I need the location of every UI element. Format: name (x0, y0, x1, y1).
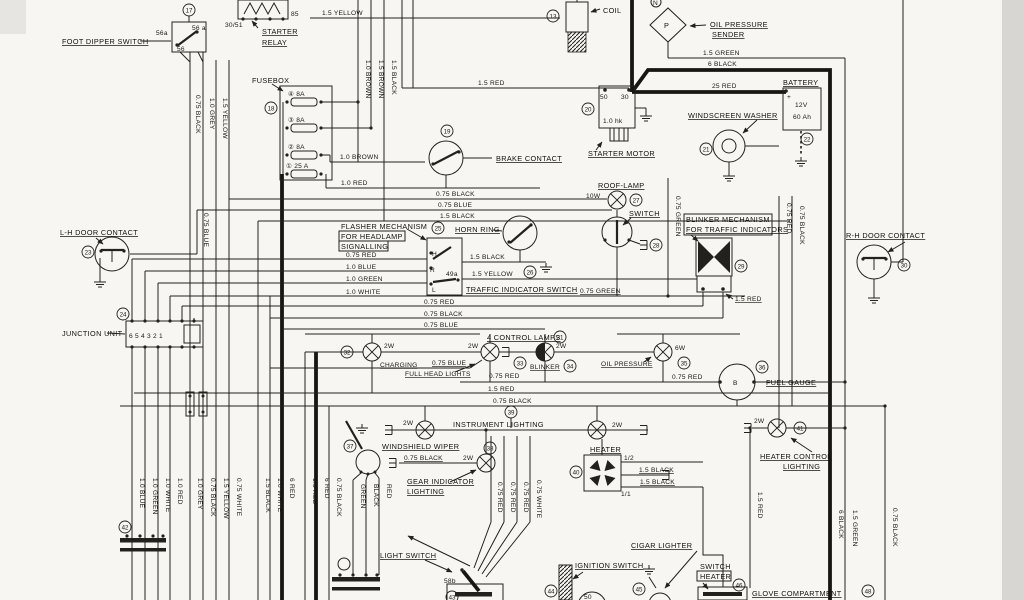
scanned-wiring-diagram: FOOT DIPPER SWITCH 56a 56 a 56 17 30/51 … (0, 0, 1024, 600)
terminal-h: H (432, 251, 437, 258)
wire-label: 1.0 GREEN (151, 478, 158, 515)
svg-text:20: 20 (585, 106, 592, 113)
wire-label: 1.5 BLACK (440, 213, 475, 220)
cigar-lighter: CIGAR LIGHTER 45 (631, 541, 697, 600)
component-number-36: 36 (756, 361, 768, 373)
label-roof-switch: SWITCH (629, 209, 660, 218)
component-number-24: 24 (117, 308, 129, 320)
svg-text:21: 21 (703, 146, 710, 153)
label-instrument-lighting: INSTRUMENT LIGHTING (453, 420, 544, 429)
component-number-30: 30 (898, 259, 910, 271)
svg-text:27: 27 (633, 197, 640, 204)
wire-label: 0.75 RED (522, 482, 529, 513)
terminal-56: 56 (177, 46, 185, 53)
svg-text:18: 18 (268, 105, 275, 112)
component-number-40: 40 (570, 466, 582, 478)
wire-label: 1.0 WHITE (276, 478, 283, 513)
svg-text:29: 29 (738, 263, 745, 270)
label-oil-pressure-sender-1: OIL PRESSURE (710, 20, 768, 29)
fuse-1-label: ① 25 A (286, 162, 309, 170)
wire-label: 0.75 RED (346, 252, 377, 259)
component-number-13: 13 (547, 10, 559, 22)
label-cigar-lighter: CIGAR LIGHTER (631, 541, 692, 550)
wire-label: 0.75 BLACK (404, 455, 443, 462)
label-oil-pressure-lamp: OIL PRESSURE (601, 361, 653, 368)
battery-voltage: 12V (795, 102, 808, 109)
component-number-28: 28 (650, 239, 662, 251)
wire-label: 0.75 RED (496, 482, 503, 513)
svg-text:17: 17 (186, 7, 193, 14)
wire-label: 0.75 RED (785, 203, 792, 234)
label-gear-indicator: GEAR INDICATOR (407, 477, 474, 486)
battery-capacity: 60 Ah (793, 114, 811, 121)
wire-label: BLACK (372, 484, 379, 507)
wire-label: 1.5 YELLOW (221, 98, 228, 139)
label-blinker-mech-1: BLINKER MECHANISM (686, 215, 770, 224)
wire-label: 1.5 YELLOW (322, 10, 363, 17)
wire-label: 0.75 BLACK (209, 478, 216, 517)
label-charging: CHARGING (380, 362, 418, 369)
label-heater: HEATER (590, 445, 621, 454)
component-number-42: 42 (119, 521, 131, 533)
svg-text:43: 43 (449, 594, 456, 600)
instrument-lighting: 2W 2W INSTRUMENT LIGHTING 39 (385, 406, 647, 439)
wire-label: 1.5 GREEN (703, 50, 740, 57)
label-flasher-1: FLASHER MECHANISM (341, 222, 427, 231)
component-number-21: 21 (700, 143, 712, 155)
label-blinker-lamp: BLINKER (530, 364, 560, 371)
wire-label: 1.5 RED (488, 386, 515, 393)
fuel-gauge: B FUEL GAUGE 36 (718, 361, 816, 400)
label-fuel-gauge: FUEL GAUGE (766, 378, 816, 387)
component-number-17: 17 (183, 4, 195, 16)
roof-lamp-watt: 10W (586, 193, 601, 200)
svg-text:46: 46 (736, 582, 743, 589)
wire-label: 1.5 RED (311, 478, 318, 505)
label-control-lamps: 4 CONTROL LAMPS (487, 333, 561, 342)
component-number-38: 38 (484, 442, 496, 454)
junction-terminals: 6 5 4 3 2 1 (129, 333, 163, 340)
wire-label: 1.0 BROWN (364, 60, 371, 99)
wire-label: 1.0 RED (176, 478, 183, 505)
wire-label: 1.0 GREEN (346, 276, 383, 283)
terminal-50-ign: 50 (584, 594, 592, 600)
blinker-lamp-watt: 2W (556, 343, 567, 350)
wire-label: 0.75 BLACK (436, 191, 475, 198)
wire-label: 1.5 BROWN (377, 60, 384, 99)
wire-label: 1.5 RED (735, 296, 762, 303)
label-coil: COIL (603, 6, 621, 15)
terminal-56a: 56a (156, 30, 168, 37)
label-traffic-indicator-switch: TRAFFIC INDICATOR SWITCH (466, 285, 578, 294)
label-rh-door-contact: R-H DOOR CONTACT (846, 231, 925, 240)
label-foot-dipper-switch: FOOT DIPPER SWITCH (62, 37, 148, 46)
component-number-45: 45 (633, 583, 645, 595)
terminal-85: 85 (291, 11, 299, 18)
wire-label: 0.75 BLUE (202, 213, 209, 247)
wire-label: 1.5 BLACK (639, 467, 674, 474)
terminal-30: 30 (621, 94, 629, 101)
component-number-35: 35 (678, 357, 690, 369)
label-switch-heater-2: HEATER (700, 572, 731, 581)
wire-label: 0.75 GREEN (580, 288, 621, 295)
svg-text:19: 19 (444, 128, 451, 135)
battery: + 12V 60 Ah BATTERY 22 (783, 78, 821, 166)
wire-label: 1.5 RED (478, 80, 505, 87)
component-number-27: 27 (630, 194, 642, 206)
horn-ring: HORN RING 26 (455, 216, 552, 278)
label-brake-contact: BRAKE CONTACT (496, 154, 562, 163)
wire-label: 1.5 BLACK (640, 479, 675, 486)
wire-label: 0.75 BLACK (493, 398, 532, 405)
sender-p: P (664, 21, 669, 30)
left-switch-block: 42 (119, 521, 166, 552)
diagram-canvas: FOOT DIPPER SWITCH 56a 56 a 56 17 30/51 … (0, 0, 1024, 600)
label-windshield-wiper: WINDSHIELD WIPER (382, 442, 459, 451)
lh-door-contact: L-H DOOR CONTACT 23 (60, 228, 138, 287)
svg-text:24: 24 (120, 311, 127, 318)
wire-label: 0.75 BLACK (335, 478, 342, 517)
wire-label: 1.0 RED (341, 180, 368, 187)
ignition-coil: COIL 13 (547, 0, 621, 52)
heater-switch: SWITCH HEATER 46 (697, 562, 747, 600)
wire-label: 0.75 BLACK (798, 206, 805, 245)
terminal-r: R (430, 267, 435, 274)
label-windscreen-washer: WINDSCREEN WASHER (688, 111, 778, 120)
svg-text:33: 33 (517, 360, 524, 367)
component-number-48: 48 (862, 585, 874, 597)
wire-label: 0.75 GREEN (674, 196, 681, 237)
component-number-20: 20 (582, 103, 594, 115)
heater-fan: HEATER 1/2 1.5 BLACK 1.5 BLACK 1/1 40 (570, 445, 675, 498)
svg-text:48: 48 (865, 588, 872, 595)
wire-label: 6 BLACK (708, 61, 737, 68)
svg-text:25: 25 (435, 225, 442, 232)
instr-lamp-watt-2: 2W (612, 422, 623, 429)
label-full-head-lights: FULL HEAD LIGHTS (405, 371, 471, 378)
label-fusebox: FUSEBOX (252, 76, 289, 85)
terminal-30-51: 30/51 (225, 22, 243, 29)
wire-label: 0.75 WHITE (535, 480, 542, 519)
svg-text:32: 32 (344, 349, 351, 356)
heater-control-lighting: 2W HEATER CONTROL LIGHTING 41 (744, 418, 832, 471)
label-battery: BATTERY (783, 78, 818, 87)
fusebox: ④ 8A ③ 8A ② 8A ① 25 A FUSEBOX 18 (252, 76, 332, 180)
wire-labels-rotated: 0.75 BLACK 1.0 GREY 1.5 YELLOW 0.75 BLUE… (138, 60, 898, 547)
terminal-56a2: 56 a (192, 25, 206, 32)
label-switch-heater-1: SWITCH (700, 562, 731, 571)
svg-text:28: 28 (653, 242, 660, 249)
oil-lamp-watt: 6W (675, 345, 686, 352)
component-number-22: 22 (801, 133, 813, 145)
svg-text:44: 44 (548, 588, 555, 595)
svg-text:36: 36 (759, 364, 766, 371)
svg-text:31: 31 (557, 334, 564, 341)
sender-n: N (653, 0, 658, 7)
component-number-29: 29 (735, 260, 747, 272)
label-flasher-2: FOR HEADLAMP (341, 232, 403, 241)
wire-label: 0.75 RED (424, 299, 455, 306)
wire-label: 1.0 GREY (196, 478, 203, 510)
terminal-49a: 49a (446, 271, 458, 278)
wire-label: 1.5 BLACK (470, 254, 505, 261)
svg-text:23: 23 (85, 249, 92, 256)
component-number-44: 44 (545, 585, 557, 597)
wire-label: 6 BLACK (837, 510, 844, 539)
wire-label: 6 RED (323, 478, 330, 499)
hcl-lamp-watt: 2W (754, 418, 765, 425)
wire-label: 0.75 BLACK (424, 311, 463, 318)
wire-label: 1.0 BROWN (340, 154, 379, 161)
component-number-18: 18 (265, 102, 277, 114)
foot-dipper-switch: FOOT DIPPER SWITCH 56a 56 a 56 17 (62, 4, 206, 53)
terminal-50: 50 (600, 94, 608, 101)
ignition-switch: IGNITION SWITCH 50 44 (545, 561, 644, 600)
svg-text:39: 39 (508, 409, 515, 416)
wire-label: 0.75 RED (672, 374, 703, 381)
terminal-b: B (733, 380, 738, 387)
svg-text:40: 40 (573, 469, 580, 476)
windshield-wiper: WINDSHIELD WIPER 37 (344, 421, 459, 476)
label-roof-lamp: ROOF-LAMP (598, 181, 645, 190)
wire-label: GREEN (359, 484, 366, 509)
label-starter: STARTER (262, 27, 298, 36)
svg-text:22: 22 (804, 136, 811, 143)
wire-label: 0.75 RED (489, 373, 520, 380)
wire-label: 1.5 BLACK (390, 60, 397, 95)
label-glove-1: GLOVE COMPARTMENT (752, 589, 842, 598)
label-light-switch: LIGHT SWITCH (380, 551, 436, 560)
fuse-4-label: ④ 8A (288, 90, 305, 98)
component-number-25: 25 (432, 222, 444, 234)
label-heater-control: HEATER CONTROL (760, 452, 832, 461)
wire-label: 6 RED (288, 478, 295, 499)
wire-label: 1.5 YELLOW (472, 271, 513, 278)
starter-power: 1.0 hk (603, 118, 623, 125)
component-number-46: 46 (733, 579, 745, 591)
inline-connectors (186, 392, 207, 416)
terminal-oneone: 1/1 (621, 491, 631, 498)
component-number-33: 33 (514, 357, 526, 369)
wire-label: 1.0 BLUE (346, 264, 377, 271)
windscreen-washer: WINDSCREEN WASHER 21 (688, 111, 779, 181)
fhl-lamp-watt: 2W (468, 343, 479, 350)
terminal-l: L (432, 287, 436, 294)
brake-contact: BRAKE CONTACT 19 (429, 125, 562, 188)
rh-door-contact: R-H DOOR CONTACT 30 (846, 231, 925, 303)
wire-label: 1.5 YELLOW (222, 478, 229, 519)
wire-label: 25 RED (712, 83, 737, 90)
label-lh-door-contact: L-H DOOR CONTACT (60, 228, 138, 237)
svg-text:41: 41 (797, 425, 804, 432)
wire-label: 0.75 WHITE (235, 478, 242, 517)
svg-text:26: 26 (527, 269, 534, 276)
svg-text:42: 42 (122, 524, 129, 531)
wire-label: 0.75 BLUE (424, 322, 458, 329)
battery-plus: + (787, 94, 791, 101)
gear-lamp-watt: 2W (463, 455, 474, 462)
svg-text:35: 35 (681, 360, 688, 367)
terminal-58b: 58b (444, 578, 456, 585)
control-lamps: 4 CONTROL LAMPS 31 2W CHARGING 2W 2W BLI… (341, 331, 690, 378)
component-number-37: 37 (344, 440, 356, 452)
wire-label: RED (385, 484, 392, 499)
starter-relay: 30/51 85 STARTER RELAY (225, 0, 299, 47)
terminal-half: 1/2 (624, 455, 634, 462)
wire-label: 0.75 RED (509, 482, 516, 513)
wire-label: 1.0 WHITE (164, 478, 171, 513)
wire-label: 1.0 GREY (208, 98, 215, 130)
component-number-39: 39 (505, 406, 517, 418)
starter-motor: 50 30 1.0 hk STARTER MOTOR 20 (582, 86, 655, 158)
label-oil-pressure-sender-2: SENDER (712, 30, 745, 39)
wire-label: 0.75 BLUE (438, 202, 472, 209)
svg-text:45: 45 (636, 586, 643, 593)
wiper-switch-block (332, 558, 380, 591)
component-number-19: 19 (441, 125, 453, 137)
label-horn-ring: HORN RING (455, 225, 500, 234)
label-relay: RELAY (262, 38, 287, 47)
svg-text:30: 30 (901, 262, 908, 269)
instr-lamp-watt: 2W (403, 420, 414, 427)
fuse-3-label: ③ 8A (288, 116, 305, 124)
fuse-2-label: ② 8A (288, 143, 305, 151)
wire-label: 1.5 GREEN (851, 510, 858, 547)
label-heater-control-2: LIGHTING (783, 462, 820, 471)
charging-lamp-watt: 2W (384, 343, 395, 350)
svg-text:37: 37 (347, 443, 354, 450)
wire-label: 1.0 BLUE (138, 478, 145, 509)
svg-text:34: 34 (567, 363, 574, 370)
component-number-34: 34 (564, 360, 576, 372)
wire-label: 0.75 BLACK (194, 95, 201, 134)
wire-label: 0.75 BLUE (432, 360, 466, 367)
wire-label: 1.5 RED (756, 492, 763, 519)
wire-label: 0.75 BLACK (891, 508, 898, 547)
label-flasher-3: SIGNALLING (341, 242, 388, 251)
glove-compartment-lighting: GLOVE COMPARTMENT LIGHTING 48 (752, 585, 874, 600)
component-number-26: 26 (524, 266, 536, 278)
blinker-mechanism: BLINKER MECHANISM FOR TRAFFIC INDICATORS… (684, 214, 788, 303)
component-number-23: 23 (82, 246, 94, 258)
label-ignition-switch: IGNITION SWITCH (575, 561, 644, 570)
svg-text:38: 38 (487, 445, 494, 452)
svg-text:13: 13 (550, 13, 557, 20)
label-starter-motor: STARTER MOTOR (588, 149, 655, 158)
label-gear-indicator-2: LIGHTING (407, 487, 444, 496)
wire-label: 1.5 BLACK (264, 478, 271, 513)
oil-pressure-sender: P N OIL PRESSURE SENDER (650, 0, 768, 42)
label-blinker-mech-2: FOR TRAFFIC INDICATORS (686, 225, 788, 234)
wire-label: 1.0 WHITE (346, 289, 381, 296)
